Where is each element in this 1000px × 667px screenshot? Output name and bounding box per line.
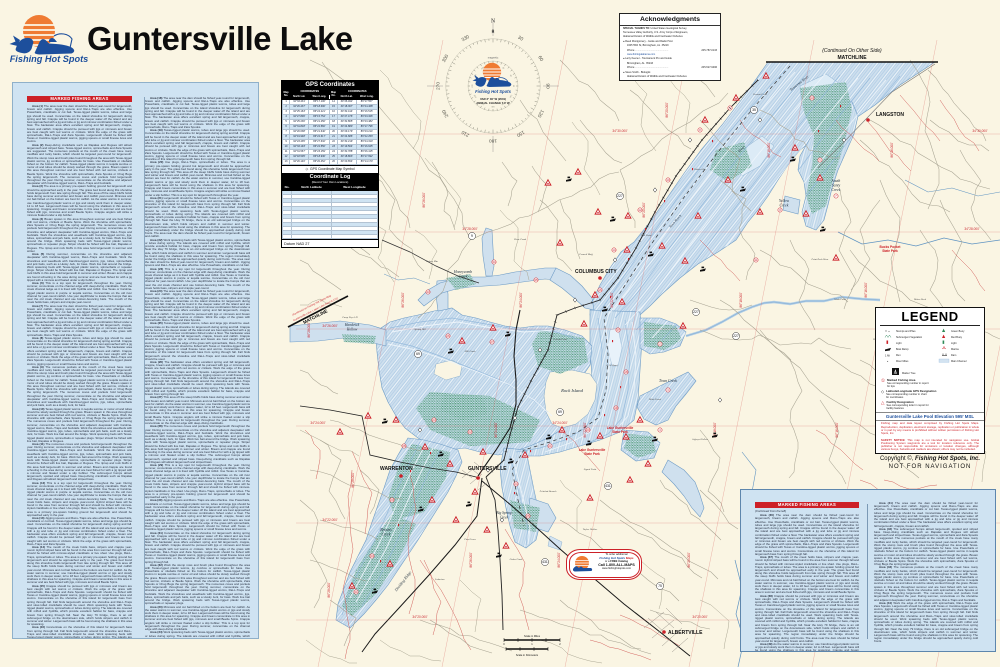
- svg-text:Main Channel: Main Channel: [951, 360, 967, 363]
- svg-text:Mill Creek: Mill Creek: [464, 350, 477, 353]
- svg-text:Big Spring: Big Spring: [496, 511, 512, 515]
- svg-text:N: N: [491, 19, 496, 25]
- svg-text:Mink Creek: Mink Creek: [648, 398, 662, 401]
- svg-text:State Park: State Park: [882, 249, 898, 253]
- svg-text:Stumps and Piles: Stumps and Piles: [896, 330, 916, 333]
- svg-text:WARRENTON: WARRENTON: [380, 466, 413, 472]
- svg-text:86°16.000': 86°16.000': [835, 422, 839, 438]
- svg-text:Marina: Marina: [951, 348, 959, 351]
- svg-text:Marker Tree: Marker Tree: [902, 372, 916, 375]
- svg-text:86°26.000': 86°26.000': [422, 192, 426, 208]
- svg-text:Fishing Hot Spots: Fishing Hot Spots: [10, 54, 89, 64]
- svg-text:Scale in Miles: Scale in Miles: [524, 634, 541, 638]
- svg-text:34°22.000': 34°22.000': [322, 518, 338, 522]
- svg-text:86°20.000': 86°20.000': [665, 102, 669, 118]
- svg-text:180: 180: [489, 138, 497, 144]
- svg-text:Hambrick: Hambrick: [344, 323, 360, 327]
- svg-text:Creek: Creek: [500, 516, 509, 520]
- svg-text:Yellow: Yellow: [779, 199, 789, 203]
- svg-text:86°24.000': 86°24.000': [519, 292, 523, 308]
- svg-text:Honeycomb: Honeycomb: [453, 270, 472, 274]
- svg-text:Red Buoy: Red Buoy: [951, 336, 963, 339]
- svg-text:South: South: [832, 179, 841, 183]
- svg-text:69: 69: [416, 352, 420, 356]
- svg-text:86°20.000': 86°20.000': [642, 202, 646, 218]
- svg-text:69: 69: [558, 410, 562, 414]
- svg-text:GUNTERSVILLE: GUNTERSVILLE: [468, 466, 507, 472]
- svg-text:Point Rock River: Point Rock River: [810, 258, 828, 261]
- svg-text:34°26.000': 34°26.000': [322, 324, 338, 328]
- svg-text:34°28.000': 34°28.000': [964, 227, 980, 231]
- svg-text:34°20.000': 34°20.000': [692, 615, 708, 619]
- svg-text:86°26.000': 86°26.000': [401, 292, 405, 308]
- svg-text:Preston Point: Preston Point: [752, 93, 767, 96]
- svg-text:MATCHLINE: MATCHLINE: [837, 55, 867, 61]
- svg-text:Widows Bar: Widows Bar: [694, 168, 706, 171]
- svg-text:State Park: State Park: [584, 452, 600, 456]
- svg-text:86°16.000': 86°16.000': [864, 282, 868, 298]
- svg-text:Mains Rock: Mains Rock: [913, 298, 927, 301]
- svg-text:River Miles: River Miles: [896, 360, 909, 363]
- svg-text:(Continued On Other Side): (Continued On Other Side): [822, 48, 882, 54]
- svg-text:86°22.000': 86°22.000': [610, 292, 614, 308]
- svg-text:ALBERTVILLE: ALBERTVILLE: [668, 630, 703, 636]
- svg-text:9: 9: [471, 234, 473, 238]
- svg-text:Jefferys Hollow: Jefferys Hollow: [692, 438, 708, 441]
- svg-text:34°30.000': 34°30.000': [612, 129, 628, 133]
- svg-text:86°28.000': 86°28.000': [307, 322, 311, 338]
- svg-text:Council Bluff: Council Bluff: [579, 253, 593, 256]
- svg-text:Pine Grove: Pine Grove: [463, 538, 476, 541]
- svg-text:Hollow: Hollow: [346, 328, 358, 332]
- svg-text:Dam: Dam: [951, 354, 956, 357]
- svg-text:B. W. Bend: B. W. Bend: [606, 364, 618, 367]
- svg-text:Spring Hill: Spring Hill: [414, 328, 425, 331]
- svg-text:Scale in Kilometers: Scale in Kilometers: [516, 653, 539, 657]
- svg-text:35: 35: [752, 108, 756, 112]
- svg-text:●: ●: [887, 360, 889, 363]
- svg-text:90: 90: [545, 83, 551, 89]
- svg-text:Boat Ramp: Boat Ramp: [896, 348, 909, 351]
- svg-text:Light: Light: [951, 342, 957, 345]
- svg-text:227: 227: [693, 310, 699, 314]
- svg-text:Santy: Santy: [832, 184, 841, 188]
- svg-text:34°28.000': 34°28.000': [462, 227, 478, 231]
- svg-text:1 Mi: 1 Mi: [885, 354, 890, 358]
- svg-text:86°18.000': 86°18.000': [739, 292, 743, 308]
- svg-text:Taylor Hollow: Taylor Hollow: [583, 528, 598, 531]
- svg-text:270: 270: [435, 82, 441, 90]
- svg-text:86°26.000': 86°26.000': [469, 552, 473, 568]
- svg-text:Green Buoy: Green Buoy: [951, 330, 965, 333]
- svg-text:86°18.000': 86°18.000': [767, 142, 771, 158]
- svg-text:86°28.000': 86°28.000': [351, 472, 355, 488]
- svg-text:magnetic: magnetic: [488, 56, 499, 60]
- svg-text:Town Creek: Town Creek: [659, 379, 677, 383]
- svg-text:86°16.000': 86°16.000': [890, 142, 894, 158]
- svg-text:431: 431: [542, 560, 548, 564]
- svg-text:LANGSTON: LANGSTON: [876, 112, 904, 118]
- svg-text:Lakeview: Lakeview: [434, 578, 445, 581]
- svg-text:86°22.000': 86°22.000': [583, 422, 587, 438]
- svg-text:ANNUAL CHANGE 7.0′ W: ANNUAL CHANGE 7.0′ W: [476, 101, 510, 105]
- svg-text:Wade Point: Wade Point: [834, 298, 846, 301]
- svg-text:86°20.000': 86°20.000': [687, 552, 691, 568]
- svg-text:Creek: Creek: [780, 204, 789, 208]
- svg-text:34°20.000': 34°20.000': [412, 615, 428, 619]
- svg-text:34°24.000': 34°24.000': [310, 421, 326, 425]
- svg-text:Light: Light: [896, 342, 902, 345]
- svg-text:Clear Creek: Clear Creek: [514, 238, 527, 241]
- svg-text:227: 227: [733, 334, 739, 338]
- svg-text:Cedar Creek: Cedar Creek: [510, 558, 524, 561]
- svg-text:86°24.000': 86°24.000': [557, 552, 561, 568]
- svg-text:Camp Ney-A-Ti: Camp Ney-A-Ti: [342, 316, 358, 319]
- svg-text:Signal Point: Signal Point: [584, 468, 597, 471]
- svg-text:Browns: Browns: [380, 528, 392, 532]
- svg-text:34°30.000': 34°30.000': [972, 129, 988, 133]
- svg-text:431: 431: [605, 484, 611, 488]
- svg-text:State Park: State Park: [612, 430, 628, 434]
- svg-text:34°24.000': 34°24.000': [552, 421, 568, 425]
- svg-text:86°28.000': 86°28.000': [327, 582, 331, 598]
- svg-text:Bakers Mtn: Bakers Mtn: [426, 260, 438, 263]
- svg-text:Creek: Creek: [382, 533, 391, 537]
- svg-text:Creek: Creek: [832, 188, 841, 192]
- svg-text:Fishing Hot Spots: Fishing Hot Spots: [475, 89, 511, 94]
- svg-text:75: 75: [658, 584, 662, 588]
- svg-text:Creek: Creek: [459, 275, 468, 279]
- svg-text:Submergent Vegetation: Submergent Vegetation: [896, 336, 923, 339]
- svg-text:Run: Run: [896, 354, 901, 357]
- svg-text:Pine Point: Pine Point: [640, 234, 652, 237]
- svg-text:86°24.000': 86°24.000': [494, 422, 498, 438]
- svg-text:Pritchett Branch: Pritchett Branch: [539, 490, 557, 493]
- svg-text:227: 227: [617, 194, 623, 198]
- svg-text:COLUMBUS CITY: COLUMBUS CITY: [575, 269, 617, 275]
- svg-text:Polecat Point: Polecat Point: [552, 338, 567, 341]
- svg-text:Rock Island: Rock Island: [560, 388, 584, 393]
